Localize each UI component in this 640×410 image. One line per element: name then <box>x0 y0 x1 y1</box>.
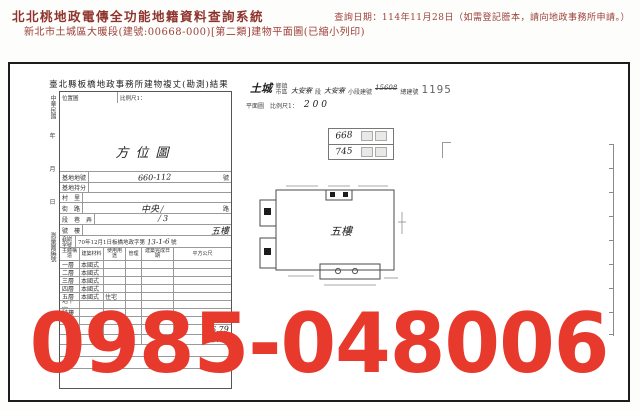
floor-row-3: 三層 本國式 <box>60 276 231 284</box>
scanned-document-frame: 臺北縣板橋地政事務所建物複丈(勘測)結果 中華民國 年 月 日 測量圖編號 位置… <box>8 62 630 402</box>
stamp-chip <box>361 131 373 141</box>
floor-material: 本國式 <box>80 261 104 268</box>
subsection-label: 小段建號 <box>348 87 372 96</box>
lot-number-suffix: 號 <box>221 173 231 182</box>
plan-type-label: 平面圖 <box>246 101 264 110</box>
col-header-management: 管理 <box>126 248 142 260</box>
col-header-material: 建築材料 <box>80 248 104 260</box>
section-lane-value: 3 <box>163 214 168 223</box>
form-row-license: 使用執照字號 70年12月1日板橋地政字第 13-1-6 號 <box>60 235 231 247</box>
stamp-number-1: 668 <box>329 130 360 142</box>
vertical-label-era: 中華民國 <box>49 95 56 119</box>
village-label: 村 里 <box>60 193 83 202</box>
scale-label: 比例尺1： <box>118 94 231 102</box>
town-value: 土城 <box>250 80 272 96</box>
floor-material: 本國式 <box>80 277 104 284</box>
form-row-lot-number: 基地地號 660-112 號 <box>60 171 231 182</box>
plan-header-line2: 平面圖 比例尺1： 200 <box>246 100 330 110</box>
stamp-chip <box>361 147 373 157</box>
floor-name: 二層 <box>60 269 80 276</box>
vertical-label-map-no: 測量圖編號 <box>49 232 56 262</box>
document-description: 新北市土城區大暖段(建號:00668-000)[第二類]建物平面圖(已縮小列印) <box>24 23 365 38</box>
stamp-chip <box>375 147 387 157</box>
location-map-label: 位置圖 <box>60 92 118 103</box>
lot-share-label: 基地持分 <box>60 183 89 192</box>
number-floor-value: 五樓 <box>211 224 229 235</box>
town-label-bottom: 市區 <box>275 89 287 96</box>
col-header-area-unit: 平方公尺 <box>174 248 231 260</box>
floor-name: 三層 <box>60 277 80 284</box>
total-building-number-value: 1195 <box>421 83 452 96</box>
vertical-label-month: 月 <box>49 166 55 173</box>
col-header-use: 使用用途 <box>104 248 126 260</box>
license-suffix: 號 <box>171 240 177 246</box>
query-date-note: 查詢日期：114年11月28日（如需登記謄本，請向地政事務所申請。） <box>330 10 630 23</box>
col-header-structure: 主體構造 <box>60 248 80 260</box>
direction-diagram-label: 方位圖 <box>60 142 231 161</box>
stair-block-icon <box>264 208 271 215</box>
street-suffix: 路 <box>221 204 231 213</box>
floor-plan-label: 五樓 <box>330 225 354 238</box>
license-label: 使用執照字號 <box>60 236 76 247</box>
street-value: 中央 <box>140 202 158 213</box>
plan-detail-block <box>343 192 348 197</box>
stamp-number-2: 745 <box>329 146 360 158</box>
survey-form-title: 臺北縣板橋地政事務所建物複丈(勘測)結果 <box>46 78 232 91</box>
lot-number-label: 基地地號 <box>60 172 89 182</box>
floor-plan-drawing: 五樓 <box>258 182 420 296</box>
number-floor-label: 號 樓 <box>60 225 83 235</box>
stamp-row-2: 745 <box>329 144 393 160</box>
vertical-label-day: 日 <box>49 199 55 206</box>
plan-top-notch <box>326 190 352 200</box>
phone-number-watermark: 0985-048006 <box>10 307 628 382</box>
license-hand-number: 13-1-6 <box>147 237 170 246</box>
section-value: 大安寮 <box>291 86 312 96</box>
stamp-chip <box>375 131 387 141</box>
form-row-column-headers: 主體構造 建築材料 使用用途 管理 建築完成日期 平方公尺 <box>60 247 231 260</box>
ditto-mark: ∕ <box>158 214 161 224</box>
stair-block-icon <box>264 248 271 255</box>
license-value: 70年12月1日板橋地政字第 <box>78 240 145 246</box>
floor-row-4: 四層 本國式 <box>60 284 231 292</box>
crossed-building-number: 15608 <box>375 84 397 92</box>
lot-number-value: 660-112 <box>138 172 172 182</box>
subsection-value: 大安寮 <box>324 86 345 96</box>
plan-bottom-notch <box>320 264 380 279</box>
plan-detail-block <box>330 192 335 197</box>
form-row-location: 位置圖 比例尺1： <box>60 92 231 103</box>
floor-row-1: 一層 本國式 <box>60 260 231 268</box>
floor-material: 本國式 <box>80 285 104 292</box>
form-row-village: 村 里 <box>60 192 231 202</box>
form-row-number-floor: 號 樓 五樓 <box>60 224 231 235</box>
form-row-section-lane: 段 巷 弄 ∕ 3 <box>60 213 231 224</box>
stamp-row-1: 668 <box>329 129 393 144</box>
plan-fixture-circle <box>352 268 357 273</box>
ditto-mark: ∕ <box>160 205 163 214</box>
plan-fixture-circle <box>335 268 340 273</box>
registration-stamp: 668 745 <box>328 128 394 160</box>
plan-scale-value: 200 <box>304 100 330 110</box>
floor-material: 本國式 <box>80 269 104 276</box>
vertical-label-year: 年 <box>49 133 55 140</box>
floor-name: 一層 <box>60 261 80 268</box>
col-header-completion-date: 建築完成日期 <box>142 248 174 260</box>
form-row-street: 街 路 中央 ∕ 路 <box>60 202 231 213</box>
section-label: 段 <box>315 87 321 96</box>
corner-mark <box>442 142 451 158</box>
plan-header-line1: 土城 鄉鎮 市區 大安寮 段 大安寮 小段建號 15608 總建號 1195 <box>250 80 452 96</box>
plan-scale-label: 比例尺1： <box>270 101 298 110</box>
total-building-number-label: 總建號 <box>400 87 418 96</box>
town-label: 鄉鎮 市區 <box>275 84 288 96</box>
form-row-lot-share: 基地持分 <box>60 182 231 192</box>
section-lane-label: 段 巷 弄 <box>60 214 95 224</box>
street-label: 街 路 <box>60 203 83 213</box>
floor-name: 四層 <box>60 285 80 292</box>
form-row-direction: 方位圖 <box>60 103 231 171</box>
floor-row-2: 二層 本國式 <box>60 268 231 276</box>
